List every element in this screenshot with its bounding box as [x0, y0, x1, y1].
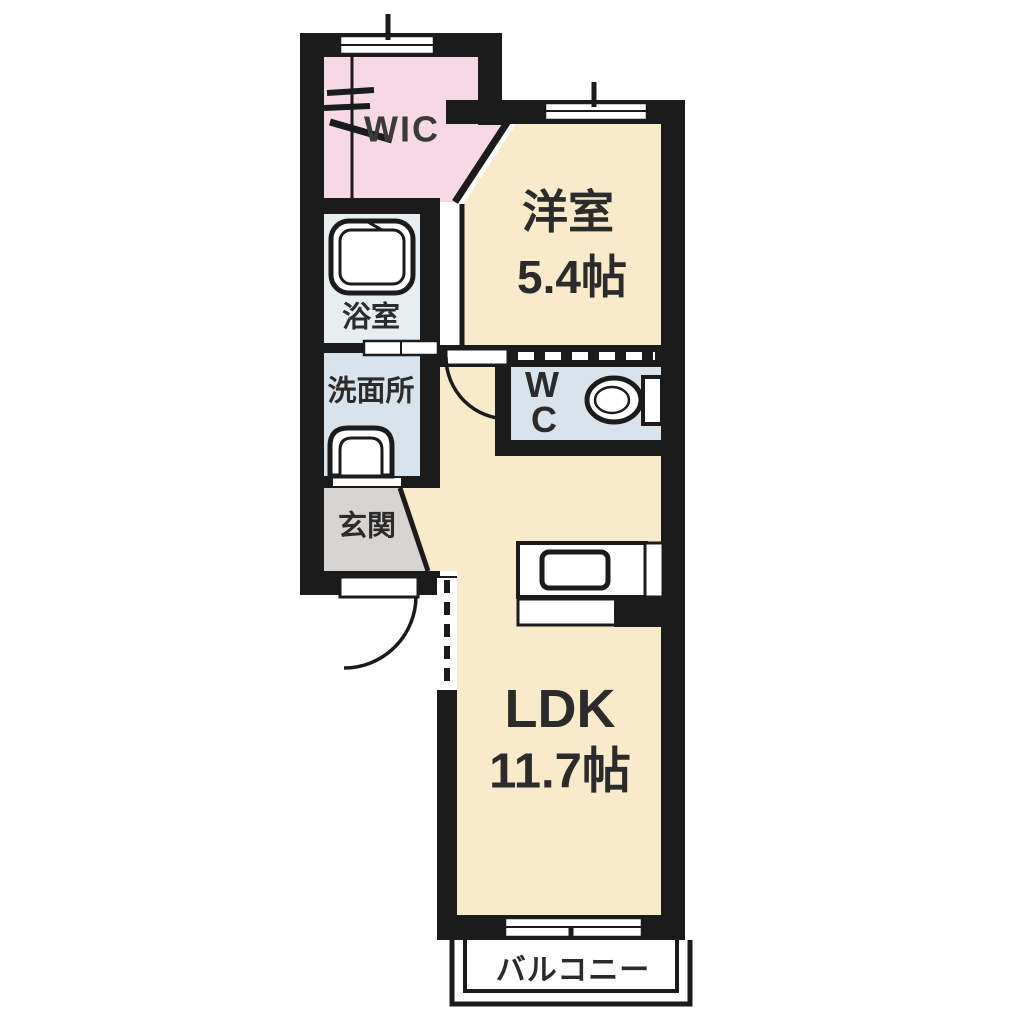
bathroom-label: 浴室: [342, 302, 400, 333]
wic-label: WIC: [364, 111, 440, 150]
floor-plan-drawing: [0, 0, 1024, 1024]
kitchen-sink-icon: [518, 543, 663, 627]
entrance-door: [340, 577, 418, 668]
ldk-size: 11.7帖: [489, 746, 631, 799]
bedroom-label: 洋室: [522, 188, 614, 238]
ldk-left-wall-dashes: [437, 578, 457, 690]
entrance-label: 玄関: [338, 511, 396, 542]
balcony-label: バルコニー: [496, 955, 650, 987]
bathtub-icon: [331, 221, 413, 293]
ldk-label: LDK: [505, 680, 616, 738]
wc-label-w: W: [525, 367, 559, 403]
floor-plan: WIC 洋室 5.4帖 浴室 洗面所 玄関 W C LDK 11.7帖 バルコニ…: [0, 0, 1024, 1024]
washbasin-icon: [330, 428, 392, 476]
wc-label-c: C: [531, 402, 557, 438]
washroom-label: 洗面所: [327, 376, 414, 407]
bedroom-size: 5.4帖: [517, 253, 627, 303]
bathroom-door: [364, 341, 438, 355]
toilet-icon: [587, 377, 662, 424]
